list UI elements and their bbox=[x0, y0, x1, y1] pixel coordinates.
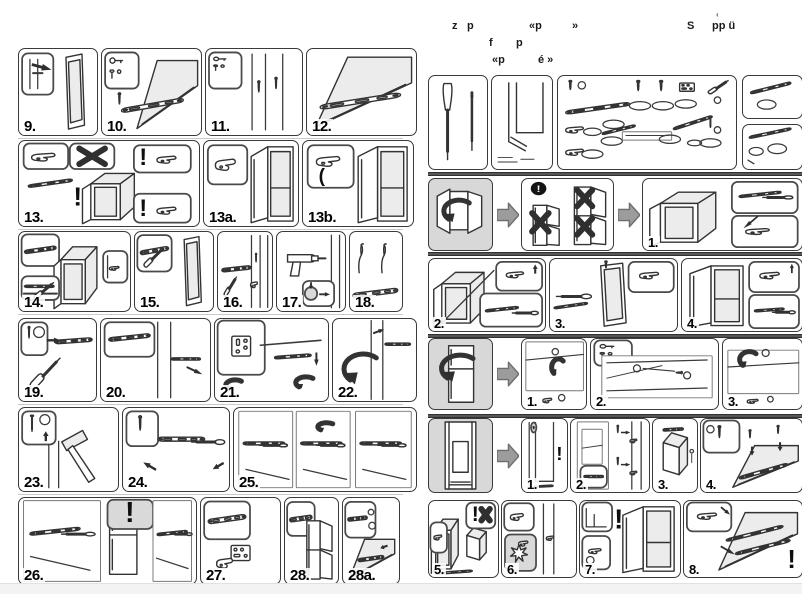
step-panel-1-3: 3. bbox=[549, 258, 678, 332]
nail-icon bbox=[709, 117, 711, 128]
step-number: 2. bbox=[594, 395, 608, 409]
step-number: 1. bbox=[646, 236, 660, 250]
warning-icon bbox=[531, 182, 547, 195]
fixing-clip-icon bbox=[747, 399, 758, 403]
fixing-clip-icon bbox=[566, 127, 584, 133]
step-number: 2. bbox=[432, 317, 446, 331]
fixing-clip-icon bbox=[630, 471, 637, 475]
section-separator bbox=[428, 172, 802, 176]
step-number: 2. bbox=[574, 478, 588, 492]
section-separator bbox=[428, 252, 802, 256]
screwdriver-icon bbox=[556, 294, 591, 298]
door-icon bbox=[601, 263, 626, 326]
exclamation-mark: ! bbox=[556, 444, 562, 465]
screw-icon bbox=[569, 80, 572, 89]
panel-cabinet-warning bbox=[521, 178, 614, 251]
step-panel-3-2: 2. bbox=[570, 418, 650, 493]
arrow-icon bbox=[621, 463, 630, 467]
screw-icon bbox=[749, 430, 751, 438]
step-number: 1. bbox=[525, 478, 539, 492]
fixing-clip-icon bbox=[630, 439, 637, 443]
row-divider bbox=[18, 138, 403, 139]
box-icon bbox=[663, 433, 687, 475]
step-panel-2-1: 1. bbox=[521, 338, 587, 410]
panel-door-swap bbox=[428, 338, 493, 410]
tools-panel-part-a bbox=[742, 75, 802, 119]
niche-icon bbox=[445, 422, 476, 489]
screw-icon bbox=[777, 425, 779, 433]
step-number: 3. bbox=[553, 317, 567, 331]
screw-icon bbox=[718, 426, 721, 438]
exclamation-mark: ! bbox=[472, 502, 479, 526]
exclamation-mark: ! bbox=[614, 503, 623, 534]
step-number: 8. bbox=[687, 563, 701, 577]
screwdriver-bit-icon bbox=[471, 92, 472, 150]
step-number: 1. bbox=[525, 395, 539, 409]
tools-panel-niche bbox=[491, 75, 553, 170]
mounting-rail-icon bbox=[566, 102, 630, 114]
right-page: 1.2.3.4.1.2.3.!1.2.3.4.!5.6.!7.!8. bbox=[0, 0, 802, 594]
tools-panel-screwdriver bbox=[428, 75, 488, 170]
step-panel-4-5: !5. bbox=[428, 500, 499, 578]
step-panel-3-1: !1. bbox=[521, 418, 568, 493]
step-panel-4-6: 6. bbox=[501, 500, 577, 578]
panel-niche-fit bbox=[428, 418, 493, 493]
mounting-rail-icon bbox=[554, 302, 588, 309]
detail-inset-box bbox=[526, 342, 584, 391]
mounting-rail-icon bbox=[749, 128, 791, 139]
screw-icon bbox=[605, 261, 607, 268]
screw-icon bbox=[660, 80, 663, 90]
arrow-icon bbox=[621, 431, 630, 435]
screwdriver-icon bbox=[512, 311, 538, 314]
screwdriver-icon bbox=[708, 81, 728, 94]
panel-door-reversal bbox=[428, 178, 493, 251]
step-number: 4. bbox=[685, 317, 699, 331]
flow-arrow-icon bbox=[497, 360, 519, 388]
panel-icon bbox=[733, 446, 798, 488]
section-separator bbox=[428, 334, 802, 338]
step-panel-2-2: 2. bbox=[590, 338, 719, 410]
step-number: 7. bbox=[583, 563, 597, 577]
flow-arrow-icon bbox=[497, 201, 519, 229]
instruction-manual-page: z p «p » ‹ S pp ü f p «p é » 9.10.11.12.… bbox=[0, 0, 802, 594]
hinge-icon bbox=[680, 83, 695, 91]
step-number: 3. bbox=[656, 478, 670, 492]
screw-icon bbox=[676, 371, 682, 373]
step-panel-1-2: 2. bbox=[428, 258, 546, 332]
step-panel-4-7: !7. bbox=[579, 500, 681, 578]
open-door-icon bbox=[623, 507, 674, 573]
row-divider bbox=[18, 314, 403, 315]
mounting-rail-icon bbox=[663, 428, 683, 431]
step-panel-4-8: !8. bbox=[683, 500, 802, 578]
row-divider bbox=[18, 494, 403, 495]
screw-icon bbox=[637, 80, 640, 90]
step-number: 4. bbox=[704, 478, 718, 492]
step-number: 6. bbox=[505, 563, 519, 577]
step-panel-0-1: 1. bbox=[642, 178, 802, 251]
step-panel-1-4: 4. bbox=[681, 258, 802, 332]
footer-bar bbox=[0, 583, 802, 594]
step-number: 3. bbox=[726, 395, 740, 409]
fixing-clip-icon bbox=[543, 398, 552, 403]
step-panel-3-3: 3. bbox=[652, 418, 698, 493]
step-panel-2-3: 3. bbox=[722, 338, 802, 410]
row-divider bbox=[18, 229, 403, 230]
section-separator bbox=[428, 414, 802, 418]
exclamation-mark: ! bbox=[787, 546, 796, 574]
flow-arrow-icon bbox=[618, 201, 640, 229]
mounting-rail-icon bbox=[673, 115, 712, 130]
niche-icon bbox=[509, 83, 543, 151]
row-divider bbox=[18, 404, 403, 405]
tools-panel-parts bbox=[557, 75, 737, 170]
step-number: 5. bbox=[432, 563, 446, 577]
mounting-rail-icon bbox=[584, 475, 603, 477]
step-panel-3-4: 4. bbox=[700, 418, 802, 493]
tools-panel-part-b bbox=[742, 124, 802, 170]
mounting-rail-icon bbox=[750, 82, 791, 94]
cross-out-icon bbox=[481, 509, 489, 521]
fixing-clip-icon bbox=[566, 149, 584, 155]
screw-icon bbox=[617, 425, 618, 432]
box-icon bbox=[467, 528, 486, 560]
screwdriver-icon bbox=[763, 196, 793, 199]
screwdriver-icon bbox=[443, 84, 452, 160]
screwdriver-icon bbox=[773, 311, 796, 314]
screw-icon bbox=[617, 457, 618, 464]
flow-arrow-icon bbox=[497, 442, 519, 470]
fixing-clip-icon bbox=[546, 536, 553, 540]
